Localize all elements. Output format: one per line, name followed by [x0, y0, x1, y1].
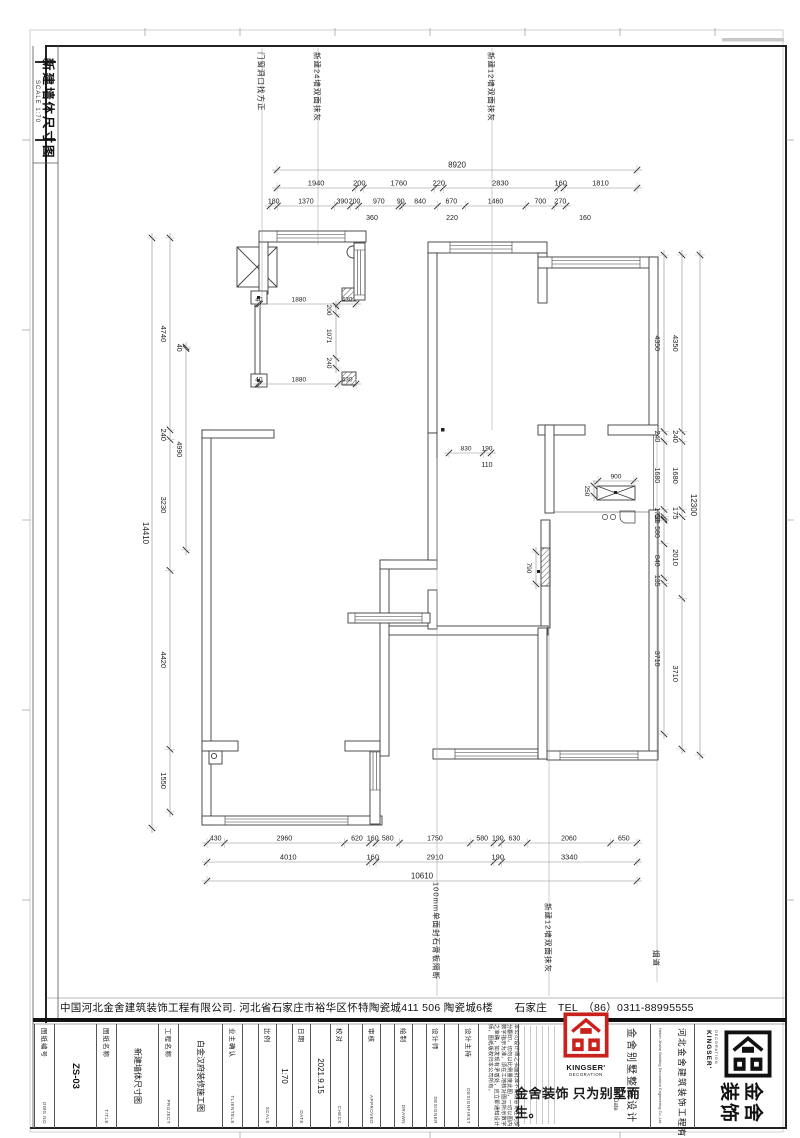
field-label-cn: 校对	[335, 1028, 345, 1043]
dim-chain-right-major: 4350240168017520103710	[671, 250, 687, 754]
floor-plan-walls	[202, 231, 658, 825]
sheet-scale-note: SCALE 1:70	[34, 80, 40, 123]
dim-chain-int-closet-v: 2001071240	[325, 301, 341, 373]
title-block-field-label: 工程名称PROJECT	[158, 1024, 178, 1128]
title-block-field-label: 设计师DESIGNER	[426, 1024, 444, 1128]
kingser-vertical-name: KINGSER'	[705, 1030, 712, 1069]
dim-label: 240	[325, 358, 332, 369]
title-block-field-value: ZS-03	[54, 1024, 96, 1128]
field-label-en: TLIENTELE	[231, 1095, 236, 1124]
company-en-vertical: Hebei Jinshe Building Decoration Enginee…	[657, 1028, 662, 1123]
dim-label: 190	[492, 853, 505, 862]
dim-label: 1750	[427, 836, 443, 843]
dim-label: 40	[255, 377, 263, 384]
dim-label: 190	[492, 836, 504, 843]
title-block-field-label: 校对CHECK	[330, 1024, 348, 1128]
jinshe-black-emblem	[724, 1030, 772, 1083]
dim-label: 700	[534, 199, 546, 206]
dim-chain-bottom-overall: 10610	[202, 872, 642, 887]
new-wall-hatch	[541, 548, 550, 586]
sheet-frame	[22, 28, 794, 1138]
dim-chain-left-minor: 404990	[175, 342, 191, 555]
dim-label: 240	[653, 431, 660, 443]
dim-label: 1760	[391, 179, 408, 188]
sheet-title-box: 新建墙体尺寸图 SCALE 1:70	[34, 58, 56, 160]
dim-label: 4420	[159, 651, 168, 668]
dim-label: 190	[482, 446, 493, 453]
field-label-en: DESIGNER	[434, 1096, 439, 1124]
kingser-red-logo: KINGSER' DECORATION	[561, 1012, 611, 1077]
dim-label: 2960	[277, 836, 293, 843]
dim-label: 270	[555, 199, 567, 206]
field-label-cn: 设计主持	[464, 1028, 474, 1058]
title-block-field-value: 新建墙体尺寸图	[116, 1024, 158, 1128]
field-value: 1:70	[281, 1028, 290, 1124]
dim-label: 160	[367, 836, 379, 843]
kingser-logo-sub: DECORATION	[561, 1072, 611, 1077]
dim-chain-top-minor: 1801370390200970908406701460700270	[265, 199, 571, 212]
dim-label: 430	[210, 836, 222, 843]
title-block-field-label: 设计主持DESIGNFIRST	[458, 1024, 478, 1128]
wall-annotations: 门窗洞口找方正新建24墙双面抹灰新建12墙双面抹灰100mm单面封石膏板隔断新建…	[257, 48, 662, 996]
dim-label: 40	[255, 297, 263, 304]
dim-label: 160	[554, 179, 567, 188]
dim-label: 220	[433, 179, 446, 188]
dim-label: 900	[611, 474, 622, 481]
dim-chain-left-major: 4740240323044201550	[159, 233, 175, 817]
dim-label: 10610	[411, 872, 434, 881]
dim-label: 430	[342, 297, 353, 304]
field-label-en: DWG NO	[43, 1102, 48, 1124]
dim-label: 14410	[141, 522, 150, 545]
field-label-en: PROJECT	[167, 1099, 172, 1124]
field-label-cn: 图纸编号	[40, 1028, 50, 1058]
dim-label: 830	[461, 446, 472, 453]
dim-label: 40	[175, 344, 182, 352]
field-label-en: APPROVED	[370, 1095, 375, 1124]
dim-label: 2910	[427, 853, 444, 862]
dim-label: 650	[618, 836, 630, 843]
dim-label: 790	[525, 563, 532, 574]
dim-label: 3230	[159, 497, 168, 514]
field-label-cn: 比例	[263, 1028, 273, 1043]
annotation-text: 新建24墙双面抹灰	[313, 52, 323, 122]
dim-chain-int-wall-v: 790	[525, 547, 541, 589]
dim-label: 8920	[448, 161, 466, 170]
dim-chain-top-major: 1940200176022028301601810	[272, 179, 642, 194]
dim-chain-bottom-major: 401016029101903340	[202, 853, 642, 868]
field-value: 2021.9.15	[317, 1028, 326, 1124]
kingser-emblem-icon	[563, 1012, 609, 1058]
dim-label: 2010	[671, 549, 680, 566]
sheet-title: 新建墙体尺寸图	[41, 58, 56, 160]
title-block-field-value: 2021.9.15	[310, 1024, 330, 1128]
field-label-cn: 业主确认	[228, 1028, 238, 1058]
dim-chain-int-closet-top: 401880430	[253, 297, 361, 310]
micro-text-strip	[722, 38, 784, 42]
dim-label: 3710	[671, 665, 680, 682]
dim-label: 580	[476, 836, 488, 843]
dim-label: 175	[671, 507, 680, 520]
field-label-en: DESIGNFIRST	[467, 1088, 472, 1124]
dim-label: 1880	[292, 297, 307, 304]
field-label-cn: 设计师	[431, 1028, 441, 1051]
dim-label: 970	[373, 199, 385, 206]
dim-label: 620	[351, 836, 363, 843]
dim-chain-right-overall: 12300	[689, 250, 705, 760]
dim-label-extra: 160	[579, 215, 591, 222]
title-block-field-label: 日期DATE	[292, 1024, 310, 1128]
title-block-field-value: 1:70	[276, 1024, 292, 1128]
title-block-field-value	[348, 1024, 362, 1128]
dim-label: 250	[583, 486, 590, 497]
dim-label: 4350	[671, 335, 680, 352]
annotation-text: 门窗洞口找方正	[257, 52, 267, 112]
dim-chain-int-door: 830190	[444, 446, 496, 459]
dimension-chains: 8920194020017602202830160181018013703902…	[141, 161, 705, 887]
field-value: 新建墙体尺寸图	[133, 1028, 144, 1124]
field-label-en: CHECK	[338, 1106, 343, 1124]
jinshe-emblem-icon	[724, 1030, 772, 1078]
dim-label: 580	[382, 836, 394, 843]
dim-label: 240	[671, 430, 680, 443]
field-value: ZS-03	[71, 1028, 82, 1124]
field-label-en: DATE	[300, 1110, 305, 1124]
dim-label: 200	[349, 199, 361, 206]
title-block-field-value	[412, 1024, 426, 1128]
annotation-text: 100mm单面封石膏板隔断	[432, 882, 442, 980]
drawing-sheet: 新建墙体尺寸图 SCALE 1:70	[0, 0, 800, 1138]
brand-char-jinshe: 金舍	[741, 1082, 768, 1124]
title-block-field-label: 业主确认TLIENTELE	[222, 1024, 242, 1128]
annotation: 新建24墙双面抹灰	[313, 48, 323, 245]
dim-label: 12300	[689, 494, 698, 517]
dim-label: 200	[325, 305, 332, 316]
sink-symbol	[602, 511, 635, 523]
dim-label: 1880	[292, 377, 307, 384]
dim-label: 2060	[561, 836, 577, 843]
dim-label: 4350	[653, 336, 660, 352]
dim-label-extra: 360	[366, 215, 378, 222]
column-symbol	[209, 751, 222, 764]
dim-label: 3340	[561, 853, 578, 862]
annotation-text: 新建12墙双面抹灰	[544, 903, 554, 973]
title-block-field-label: 图纸编号DWG NO	[34, 1024, 54, 1128]
dim-label: 4990	[175, 442, 182, 458]
dim-label: 840	[414, 199, 426, 206]
dim-label: 160	[367, 853, 380, 862]
dim-label: 390	[336, 199, 348, 206]
brand-char-zhuangshi: 装饰	[717, 1082, 744, 1124]
dim-label: 30	[653, 516, 660, 524]
field-label-cn: 工程名称	[164, 1028, 174, 1058]
dim-label: 1550	[159, 772, 168, 789]
dim-chain-top-overall: 8920	[272, 161, 642, 176]
field-label-en: TITLE	[105, 1109, 110, 1124]
company-address-bar: 中国河北金舍建筑装饰工程有限公司. 河北省石家庄市裕华区怀特陶瓷城411 506…	[60, 1000, 750, 1015]
dim-label: 90	[397, 199, 405, 206]
dim-label: 4740	[159, 326, 168, 343]
title-block-field-value	[242, 1024, 258, 1128]
dim-label-extra: 110	[481, 462, 492, 469]
brand-slogan: 金舍装饰 只为别墅而生。	[515, 1083, 657, 1121]
dim-label: 670	[446, 199, 458, 206]
title-block-field-label: 审核APPROVED	[362, 1024, 380, 1128]
dim-label: 1460	[488, 199, 504, 206]
dim-label: 1940	[308, 179, 325, 188]
dim-label: 1071	[325, 329, 332, 344]
dim-label: 1680	[653, 468, 660, 484]
field-label-cn: 日期	[297, 1028, 307, 1043]
dim-label: 630	[509, 836, 521, 843]
dim-label: 135	[653, 575, 660, 587]
title-block-field-label: 比例SCALE	[258, 1024, 276, 1128]
annotation-text: 烟道	[652, 950, 662, 967]
title-block-field-label: 绘制DRAWN	[394, 1024, 412, 1128]
field-label-en: SCALE	[266, 1107, 271, 1124]
dim-label: 430	[342, 377, 353, 384]
floor-plan-canvas: 新建墙体尺寸图 SCALE 1:70	[0, 0, 800, 1138]
field-label-cn: 审核	[367, 1028, 377, 1043]
dim-label: 1810	[592, 179, 609, 188]
annotation: 新建12墙双面抹灰	[487, 48, 497, 430]
dim-label: 4010	[280, 853, 297, 862]
title-block-field-value	[444, 1024, 458, 1128]
kingser-vertical-sub: DECORATION	[714, 1030, 719, 1064]
field-label-en: DRAWN	[402, 1105, 407, 1124]
dim-chain-left-overall: 14410	[141, 233, 157, 833]
dim-chain-int-cab: 900	[593, 474, 639, 487]
title-block-field-label: 图纸名称TITLE	[96, 1024, 116, 1128]
dim-label: 180	[268, 199, 280, 206]
field-label-cn: 绘制	[399, 1028, 409, 1043]
dim-chain-int-closet-bot: 401880430	[253, 377, 361, 390]
title-block-field-value	[380, 1024, 394, 1128]
dim-label: 580	[653, 526, 660, 538]
disclaimer-cell: 本公司设计师之书面批准不得随意将任何部分翻印。切勿以比例量度此图，一切以图内数字…	[478, 1024, 518, 1128]
dim-label: 1680	[671, 467, 680, 484]
dim-label: 200	[353, 179, 366, 188]
title-block-field-value: 白金汉府装修施工图	[178, 1024, 222, 1128]
dim-label: 2830	[492, 179, 509, 188]
dim-label: 840	[653, 555, 660, 567]
dim-label: 3710	[653, 651, 660, 667]
dim-label: 240	[159, 428, 168, 441]
dim-chain-bottom-minor: 430296062016058017505801906302060650	[202, 836, 642, 849]
dim-label: 1370	[298, 199, 314, 206]
company-cn-vertical: 河北金舍建筑装饰工程有限公司	[676, 1028, 688, 1138]
annotation-text: 新建12墙双面抹灰	[487, 52, 497, 122]
field-value: 白金汉府装修施工图	[196, 1028, 207, 1124]
dim-label-extra: 220	[446, 215, 458, 222]
kingser-logo-name: KINGSER'	[561, 1063, 611, 1072]
field-label-cn: 图纸名称	[102, 1028, 112, 1058]
